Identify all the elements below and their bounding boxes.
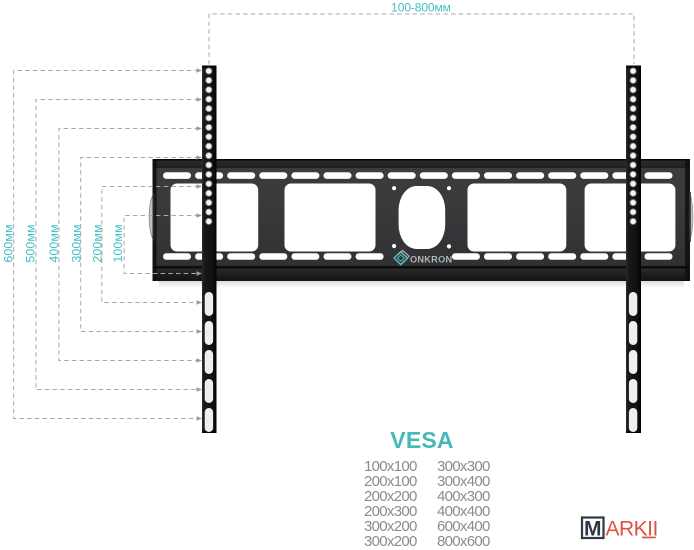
svg-text:400мм: 400мм — [47, 224, 61, 262]
svg-text:100мм: 100мм — [111, 224, 125, 262]
svg-text:VESA: VESA — [390, 427, 453, 453]
svg-text:600мм: 600мм — [1, 224, 15, 262]
svg-text:200мм: 200мм — [91, 224, 105, 262]
svg-text:ONKRON: ONKRON — [410, 254, 452, 264]
svg-text:300мм: 300мм — [69, 224, 83, 262]
svg-text:100-800мм: 100-800мм — [391, 0, 451, 14]
svg-text:800x600: 800x600 — [437, 533, 490, 550]
svg-text:500мм: 500мм — [24, 224, 38, 262]
svg-text:300x200: 300x200 — [364, 533, 417, 550]
svg-text:M: M — [584, 518, 602, 541]
